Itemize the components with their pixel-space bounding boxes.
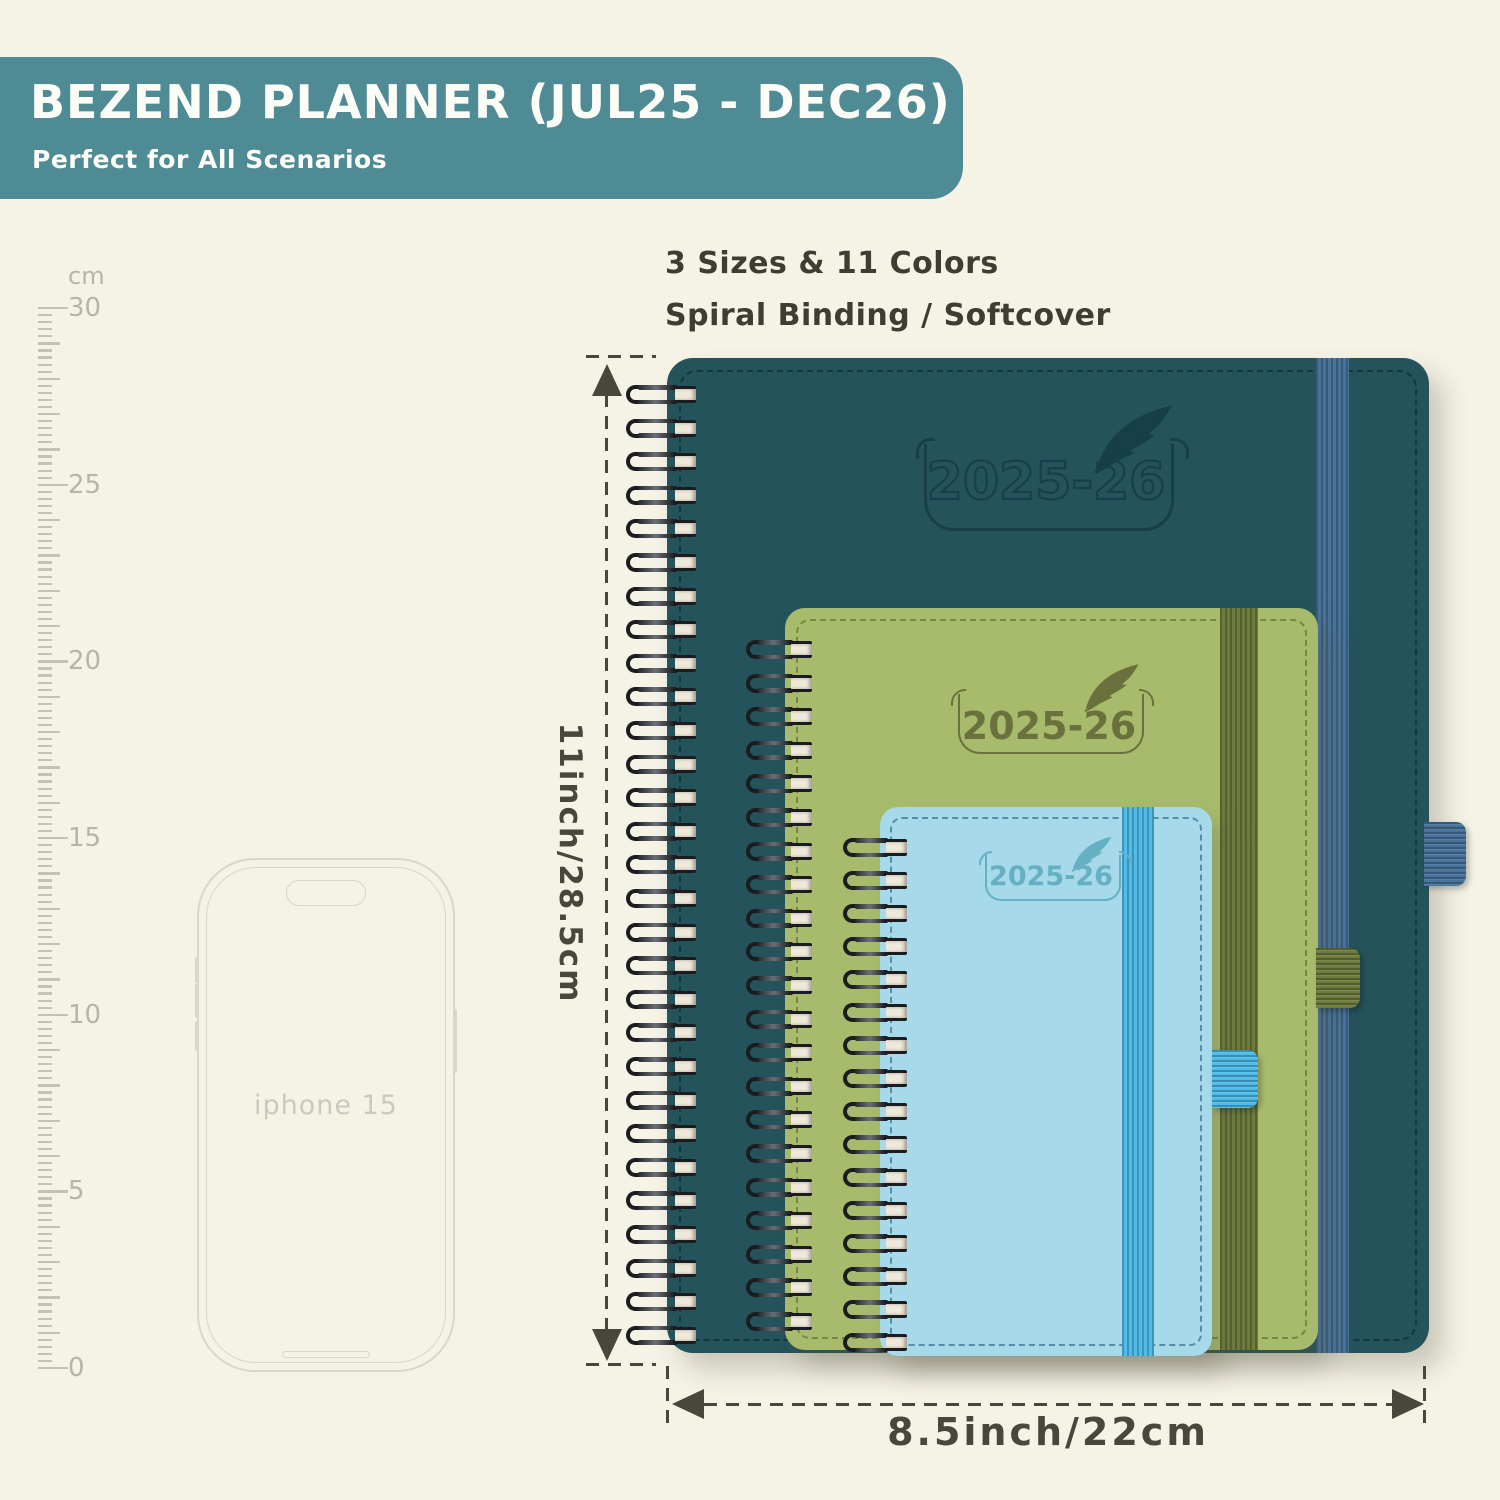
spiral-ring <box>843 1036 907 1055</box>
spiral-ring <box>843 1267 907 1286</box>
arrow-down-icon <box>592 1329 622 1361</box>
planner-small: 2025-26 <box>0 0 1500 1500</box>
spiral-ring <box>843 937 907 956</box>
spiral-ring <box>843 1003 907 1022</box>
arrow-up-icon <box>592 364 622 396</box>
spiral-ring <box>843 970 907 989</box>
spiral-ring <box>843 1168 907 1187</box>
product-size-diagram: BEZEND PLANNER (JUL25 - DEC26) Perfect f… <box>0 0 1500 1500</box>
pen-loop <box>1212 1050 1258 1108</box>
spiral-ring <box>843 1102 907 1121</box>
arrow-right-icon <box>1392 1389 1424 1419</box>
spiral-ring <box>843 871 907 890</box>
spiral-ring <box>843 1069 907 1088</box>
year-label: 2025-26 <box>985 861 1117 892</box>
spiral-ring <box>843 1234 907 1253</box>
spiral-binding <box>843 838 907 1363</box>
width-dimension-line <box>682 1403 1408 1406</box>
height-dimension-tick-bottom <box>586 1363 656 1366</box>
width-dimension-tick-left <box>666 1366 669 1424</box>
spiral-ring <box>843 904 907 923</box>
height-dimension-label: 11inch/28.5cm <box>552 663 588 1063</box>
spiral-ring <box>843 838 907 857</box>
spiral-ring <box>843 1201 907 1220</box>
height-dimension-tick-top <box>586 355 656 358</box>
height-dimension-line <box>605 372 608 1357</box>
spiral-ring <box>843 1135 907 1154</box>
arrow-left-icon <box>672 1389 704 1419</box>
elastic-band <box>1122 807 1154 1356</box>
spiral-ring <box>843 1333 907 1352</box>
spiral-ring <box>843 1300 907 1319</box>
width-dimension-label: 8.5inch/22cm <box>848 1410 1248 1454</box>
